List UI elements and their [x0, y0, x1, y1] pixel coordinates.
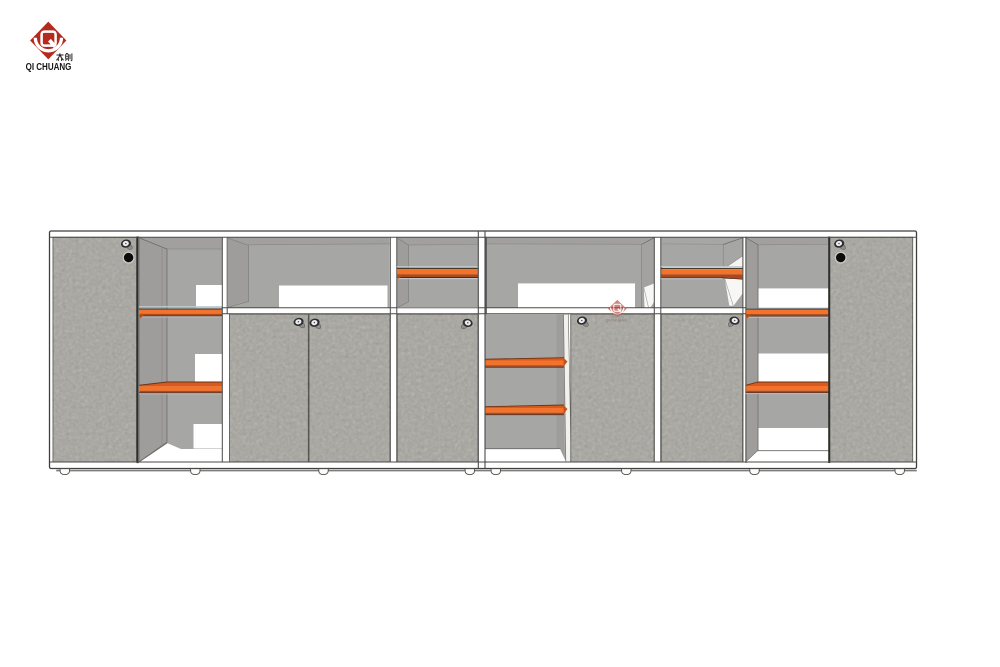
- svg-text:QI CHUANG: QI CHUANG: [26, 62, 72, 73]
- svg-text:QI CHUANG: QI CHUANG: [606, 318, 628, 322]
